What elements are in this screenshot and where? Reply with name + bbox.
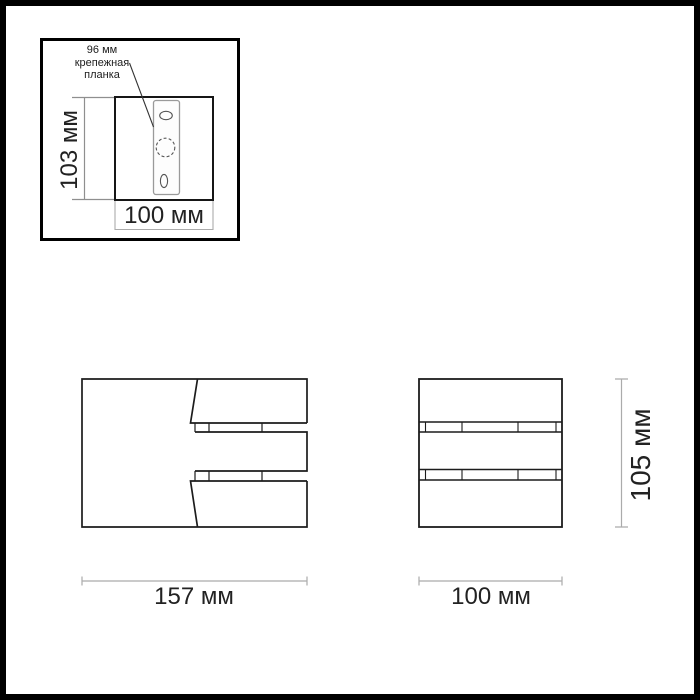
dimension-diagram: 96 мм крепежная планка 103 мм 100 мм 157… (0, 0, 700, 700)
inset-width-label: 100 мм (104, 204, 224, 228)
inset-height-label: 103 мм (58, 90, 82, 210)
callout-line-2: крепежная (42, 57, 162, 70)
front-view-drawing (419, 379, 562, 527)
mounting-strip-callout: 96 мм крепежная планка (42, 44, 162, 82)
front-view-width-label: 100 мм (411, 585, 571, 609)
side-view-width-label: 157 мм (114, 585, 274, 609)
side-view-drawing (82, 379, 307, 527)
front-view-height-label: 105 мм (627, 375, 655, 535)
callout-line-3: планка (42, 69, 162, 82)
callout-line-1: 96 мм (42, 44, 162, 57)
